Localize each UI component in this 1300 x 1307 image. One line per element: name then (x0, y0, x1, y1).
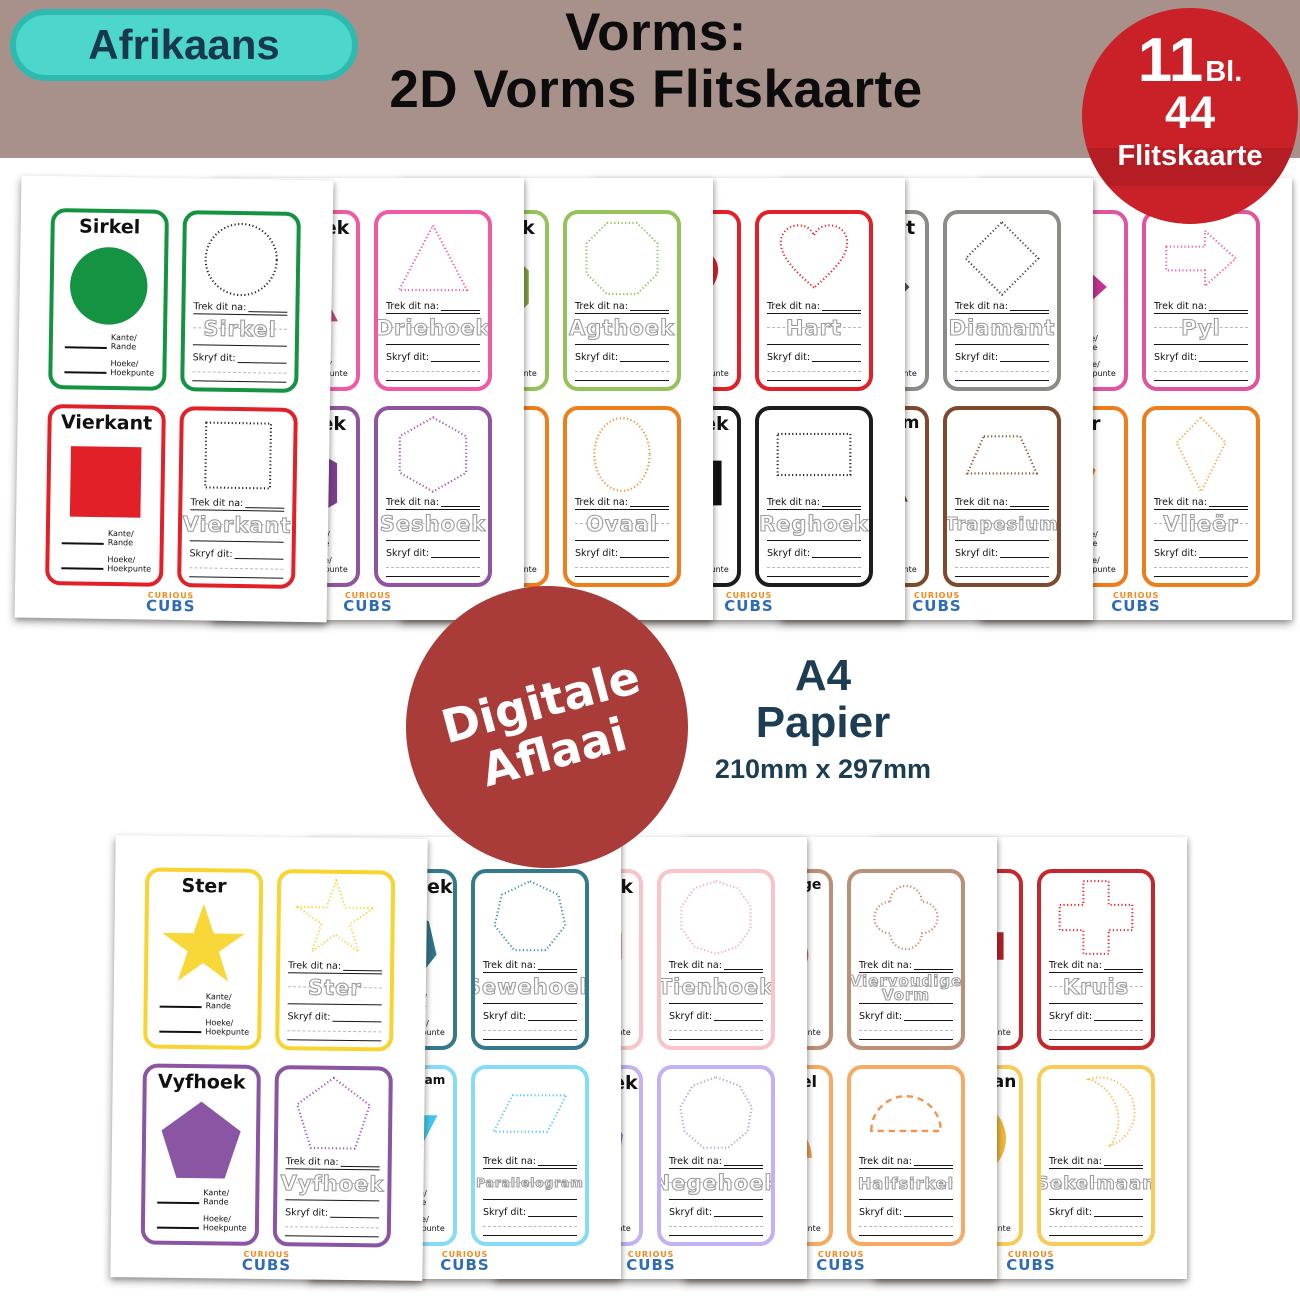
writing-line (904, 1216, 953, 1217)
trace-prompt: Trek dit na: (767, 497, 820, 508)
trace-word-guide: Reghoek (767, 509, 861, 541)
write-prompt: Skryf dit: (859, 1011, 902, 1022)
flashcard-trace-heart: Trek dit na: Hart Skryf dit: (755, 210, 873, 391)
write-guide (575, 559, 669, 577)
answer-line (62, 542, 104, 545)
trace-word-guide: Negehoek (669, 1168, 763, 1200)
writing-line (1209, 506, 1248, 507)
flashcard-trace-quatrefoil: Trek dit na: Viervoudige Vorm Skryf dit: (847, 869, 965, 1050)
trace-word-guide: Parallelogram (483, 1168, 577, 1200)
write-prompt: Skryf dit: (955, 352, 998, 363)
write-guide (767, 363, 861, 381)
write-prompt: Skryf dit: (483, 1207, 526, 1218)
writing-line (1199, 361, 1248, 362)
write-guide (189, 559, 283, 578)
write-prompt: Skryf dit: (575, 352, 618, 363)
write-prompt: Skryf dit: (669, 1207, 712, 1218)
trace-word: Halfsirkel (858, 1176, 954, 1191)
flashcard-trace-hexagon: Trek dit na: Seshoek Skryf dit: (374, 406, 492, 587)
write-prompt: Skryf dit: (193, 352, 236, 364)
writing-line (441, 310, 480, 311)
page-title: Vorms: 2D Vorms Flitskaarte (316, 4, 996, 118)
writing-line (812, 557, 861, 558)
flashcard-trace-semicircle: Trek dit na: Halfsirkel Skryf dit: (847, 1065, 965, 1246)
curious-cubs-logo: CURIOUS CUBS (15, 590, 327, 617)
trace-prompt: Trek dit na: (288, 960, 341, 972)
trace-word: Sewehoek (471, 978, 589, 998)
count-labels: Kante/Rande Hoeke/Hoekpunte (157, 1181, 251, 1233)
card-row: Ster Kante/Rande Hoeke/Hoekpunte Trek di… (143, 867, 427, 1051)
trace-word: Hart (786, 319, 842, 339)
write-guide (955, 559, 1049, 577)
writing-line (248, 311, 287, 313)
writing-line (1010, 506, 1049, 507)
writing-line (822, 506, 861, 507)
trace-prompt: Trek dit na: (1154, 497, 1207, 508)
semicircle-outline-icon (859, 1074, 953, 1153)
flashcard-trace-star: Trek dit na: Ster Skryf dit: (275, 869, 395, 1051)
oval-outline-icon (575, 415, 669, 494)
trace-word-guide: Viervoudige Vorm (859, 972, 953, 1004)
card-row: Sirkel Kante/Rande Hoeke/Hoekpunte Trek … (48, 208, 333, 393)
writing-line (431, 361, 480, 362)
flashcard-trace-trapezium: Trek dit na: Trapesium Skryf dit: (943, 406, 1061, 587)
trace-word: Negehoek (657, 1174, 775, 1194)
trace-prompt: Trek dit na: (767, 301, 820, 312)
writing-line (1094, 1020, 1143, 1021)
curious-cubs-logo: CURIOUS CUBS (110, 1249, 422, 1275)
trace-prompt: Trek dit na: (1049, 960, 1102, 971)
write-guide (859, 1022, 953, 1040)
trace-prompt: Trek dit na: (859, 960, 912, 971)
trace-prompt: Trek dit na: (859, 1156, 912, 1167)
trace-prompt: Trek dit na: (386, 497, 439, 508)
writing-line (812, 361, 861, 362)
write-prompt: Skryf dit: (287, 1011, 330, 1023)
write-guide (386, 559, 480, 577)
count-labels: Kante/Rande Hoeke/Hoekpunte (61, 522, 155, 574)
flashcard-trace-cross: Trek dit na: Kruis Skryf dit: (1037, 869, 1155, 1050)
trace-prompt: Trek dit na: (483, 960, 536, 971)
trace-word: Agthoek (569, 319, 675, 339)
writing-line (1000, 361, 1049, 362)
paper-size-name: A4 (673, 652, 973, 699)
sides-label: Kante/Rande (203, 1188, 250, 1207)
trace-word: Vyfhoek (281, 1174, 385, 1195)
flashcard-trace-square: Trek dit na: Vierkant Skryf dit: (177, 406, 298, 589)
write-prompt: Skryf dit: (955, 548, 998, 559)
write-guide (669, 1218, 763, 1236)
trace-prompt: Trek dit na: (286, 1156, 339, 1168)
paper-info: A4 Papier 210mm x 297mm (673, 652, 973, 785)
flashcard-trace-triangle: Trek dit na: Driehoek Skryf dit: (374, 210, 492, 391)
title-line-2: 2D Vorms Flitskaarte (316, 61, 996, 118)
trace-prompt: Trek dit na: (955, 497, 1008, 508)
write-guide (192, 363, 286, 382)
trace-word-guide: Trapesium (955, 509, 1049, 541)
language-badge: Afrikaans (10, 9, 358, 81)
flashcard-trace-crescent: Trek dit na: Sekelmaan Skryf dit: (1037, 1065, 1155, 1246)
trace-word: Diamant (949, 319, 1056, 339)
trace-word-guide: Ster (288, 972, 382, 1005)
flashcard-display-star: Ster Kante/Rande Hoeke/Hoekpunte (143, 867, 263, 1049)
square-icon (50, 436, 161, 528)
answer-line (65, 346, 107, 349)
writing-line (1094, 1216, 1143, 1217)
pentagon-icon (145, 1095, 256, 1186)
flashcard-trace-decagon: Trek dit na: Tienhoek Skryf dit: (657, 869, 775, 1050)
writing-line (1104, 1165, 1143, 1166)
count-labels: Kante/Rande Hoeke/Hoekpunte (159, 985, 253, 1037)
trapezium-outline-icon (955, 415, 1049, 494)
write-guide (287, 1022, 381, 1041)
write-guide (483, 1218, 577, 1236)
writing-line (714, 1216, 763, 1217)
trace-word: Ster (308, 979, 362, 1000)
trace-word-guide: Sirkel (193, 313, 287, 346)
decagon-outline-icon (669, 878, 763, 957)
corners-label: Hoeke/Hoekpunte (205, 1018, 252, 1037)
trace-word: Vlieër (1163, 515, 1239, 535)
nonagon-outline-icon (669, 1074, 763, 1153)
writing-line (431, 557, 480, 558)
writing-line (724, 969, 763, 970)
flashcard-trace-pentagon: Trek dit na: Vyfhoek Skryf dit: (273, 1065, 393, 1247)
shape-title: Vyfhoek (147, 1073, 257, 1094)
sides-label: Kante/Rande (111, 333, 158, 352)
card-row: Vyfhoek Kante/Rande Hoeke/Hoekpunte Trek… (141, 1063, 425, 1247)
heart-outline-icon (767, 219, 861, 298)
answer-line (61, 567, 103, 570)
flashcard-trace-parallelogram: Trek dit na: Parallelogram Skryf dit: (471, 1065, 589, 1246)
trace-word: Kruis (1063, 978, 1129, 998)
write-prompt: Skryf dit: (386, 548, 429, 559)
trace-word-guide: Kruis (1049, 972, 1143, 1004)
answer-line (160, 1005, 202, 1008)
flashcard-display-circle: Sirkel Kante/Rande Hoeke/Hoekpunte (48, 208, 169, 391)
trace-word-guide: Seshoek (386, 509, 480, 541)
writing-line (528, 1216, 577, 1217)
write-prompt: Skryf dit: (1154, 548, 1197, 559)
kite-outline-icon (1154, 415, 1248, 494)
cards-count: 44 (1082, 92, 1298, 134)
write-guide (575, 363, 669, 381)
trace-prompt: Trek dit na: (193, 301, 246, 313)
write-guide (955, 363, 1049, 381)
flashcard-trace-nonagon: Trek dit na: Negehoek Skryf dit: (657, 1065, 775, 1246)
trace-word-guide: Agthoek (575, 313, 669, 345)
flashcard-trace-kite: Trek dit na: Vlieër Skryf dit: (1142, 406, 1260, 587)
write-prompt: Skryf dit: (575, 548, 618, 559)
writing-line (441, 506, 480, 507)
title-line-1: Vorms: (316, 4, 996, 61)
shape-title: Sirkel (55, 217, 165, 239)
writing-line (914, 969, 953, 970)
diamond-outline-icon (955, 219, 1049, 298)
write-prompt: Skryf dit: (767, 352, 810, 363)
triangle-outline-icon (386, 219, 480, 298)
trace-word-guide: Hart (767, 313, 861, 345)
flashcard-display-pentagon: Vyfhoek Kante/Rande Hoeke/Hoekpunte (141, 1063, 261, 1245)
cards-label: Flitskaarte (1082, 140, 1298, 173)
quatrefoil-outline-icon (859, 878, 953, 957)
parallelogram-outline-icon (483, 1074, 577, 1153)
trace-word: Vierkant (182, 515, 291, 537)
writing-line (822, 310, 861, 311)
writing-line (245, 507, 284, 509)
flashcard-trace-rectangle: Trek dit na: Reghoek Skryf dit: (755, 406, 873, 587)
trace-prompt: Trek dit na: (1049, 1156, 1102, 1167)
writing-line (1209, 310, 1248, 311)
write-prompt: Skryf dit: (767, 548, 810, 559)
pages-unit: Bl. (1205, 56, 1242, 89)
trace-word: Trapesium (945, 516, 1059, 533)
flashcard-display-square: Vierkant Kante/Rande Hoeke/Hoekpunte (45, 404, 166, 587)
sides-label: Kante/Rande (108, 529, 155, 548)
flashcard-trace-heptagon: Trek dit na: Sewehoek Skryf dit: (471, 869, 589, 1050)
count-badge-pages: 11 Bl. (1082, 32, 1298, 90)
crescent-outline-icon (1049, 1074, 1143, 1153)
circle-outline-icon (194, 219, 289, 299)
trace-word-guide: Sewehoek (483, 972, 577, 1004)
trace-word-guide: Halfsirkel (859, 1168, 953, 1200)
trace-word-guide: Vlieër (1154, 509, 1248, 541)
writing-line (1000, 557, 1049, 558)
writing-line (714, 1020, 763, 1021)
write-guide (1154, 559, 1248, 577)
write-guide (285, 1218, 379, 1237)
sides-label: Kante/Rande (206, 992, 253, 1011)
write-guide (859, 1218, 953, 1236)
trace-word-guide: Vierkant (190, 509, 284, 542)
write-guide (1049, 1022, 1143, 1040)
writing-line (1104, 969, 1143, 970)
writing-line (341, 1166, 380, 1167)
writing-line (904, 1020, 953, 1021)
trace-word-guide: Tienhoek (669, 972, 763, 1004)
trace-word: Reghoek (759, 515, 869, 535)
write-prompt: Skryf dit: (285, 1207, 328, 1219)
trace-prompt: Trek dit na: (483, 1156, 536, 1167)
write-guide (669, 1022, 763, 1040)
trace-prompt: Trek dit na: (190, 497, 243, 509)
hexagon-outline-icon (386, 415, 480, 494)
trace-prompt: Trek dit na: (669, 960, 722, 971)
writing-line (528, 1020, 577, 1021)
answer-line (64, 371, 106, 374)
trace-word-guide: Driehoek (386, 313, 480, 345)
write-guide (483, 1022, 577, 1040)
trace-word: Pyl (1181, 319, 1221, 339)
write-prompt: Skryf dit: (1049, 1207, 1092, 1218)
shape-title: Ster (149, 877, 259, 898)
answer-line (157, 1227, 199, 1230)
trace-word: Viervoudige Vorm (850, 974, 963, 1003)
writing-line (620, 557, 669, 558)
writing-line (343, 970, 382, 971)
octagon-outline-icon (575, 219, 669, 298)
write-prompt: Skryf dit: (669, 1011, 712, 1022)
write-prompt: Skryf dit: (1049, 1011, 1092, 1022)
write-guide (1049, 1218, 1143, 1236)
writing-line (620, 361, 669, 362)
writing-line (1199, 557, 1248, 558)
trace-word-guide: Sekelmaan (1049, 1168, 1143, 1200)
shape-title: Vierkant (51, 413, 161, 435)
writing-line (914, 1165, 953, 1166)
trace-word: Driehoek (376, 319, 491, 339)
writing-line (538, 1165, 577, 1166)
star-icon (148, 899, 259, 990)
heptagon-outline-icon (483, 878, 577, 957)
corners-label: Hoeke/Hoekpunte (203, 1214, 250, 1233)
worksheet-page: Sirkel Kante/Rande Hoeke/Hoekpunte Trek … (15, 176, 334, 623)
count-labels: Kante/Rande Hoeke/Hoekpunte (64, 326, 158, 378)
star-outline-icon (288, 878, 383, 958)
trace-word-guide: Ovaal (575, 509, 669, 541)
write-prompt: Skryf dit: (386, 352, 429, 363)
writing-line (630, 506, 669, 507)
corners-label: Hoeke/Hoekpunte (110, 359, 157, 378)
trace-word: Sirkel (203, 319, 277, 340)
trace-word: Parallelogram (476, 1178, 583, 1189)
card-row: Vierkant Kante/Rande Hoeke/Hoekpunte Tre… (45, 404, 330, 589)
count-badge: 11 Bl. 44 Flitskaarte (1082, 8, 1298, 224)
answer-line (157, 1201, 199, 1204)
trace-word-guide: Vyfhoek (285, 1168, 379, 1201)
pages-count: 11 (1138, 32, 1204, 90)
rectangle-outline-icon (767, 415, 861, 494)
answer-line (159, 1031, 201, 1034)
trace-prompt: Trek dit na: (575, 497, 628, 508)
pentagon-outline-icon (286, 1074, 381, 1154)
circle-icon (53, 240, 164, 332)
write-prompt: Skryf dit: (1154, 352, 1197, 363)
flashcard-trace-circle: Trek dit na: Sirkel Skryf dit: (180, 210, 301, 393)
digital-download-text: Digitale Aflaai (436, 651, 659, 804)
trace-word-guide: Diamant (955, 313, 1049, 345)
trace-prompt: Trek dit na: (955, 301, 1008, 312)
trace-prompt: Trek dit na: (669, 1156, 722, 1167)
digital-download-badge: Digitale Aflaai (406, 586, 688, 868)
trace-prompt: Trek dit na: (575, 301, 628, 312)
corners-label: Hoeke/Hoekpunte (107, 555, 154, 574)
worksheet-page: Ster Kante/Rande Hoeke/Hoekpunte Trek di… (110, 835, 427, 1281)
writing-line (724, 1165, 763, 1166)
trace-prompt: Trek dit na: (1154, 301, 1207, 312)
flashcard-trace-oval: Trek dit na: Ovaal Skryf dit: (563, 406, 681, 587)
flashcard-trace-arrow: Trek dit na: Pyl Skryf dit: (1142, 210, 1260, 391)
trace-word: Ovaal (586, 515, 658, 535)
trace-word: Sekelmaan (1037, 1175, 1155, 1192)
write-guide (386, 363, 480, 381)
write-guide (1154, 363, 1248, 381)
flashcard-trace-diamond: Trek dit na: Diamant Skryf dit: (943, 210, 1061, 391)
flashcard-trace-octagon: Trek dit na: Agthoek Skryf dit: (563, 210, 681, 391)
trace-word: Tienhoek (658, 978, 774, 998)
writing-line (538, 969, 577, 970)
write-prompt: Skryf dit: (483, 1011, 526, 1022)
write-prompt: Skryf dit: (189, 548, 232, 560)
writing-line (630, 310, 669, 311)
trace-prompt: Trek dit na: (386, 301, 439, 312)
trace-word-guide: Pyl (1154, 313, 1248, 345)
paper-dimensions: 210mm x 297mm (673, 754, 973, 785)
trace-word: Seshoek (380, 515, 486, 535)
paper-material: Papier (673, 699, 973, 746)
square-outline-icon (191, 415, 286, 495)
write-prompt: Skryf dit: (859, 1207, 902, 1218)
arrow-outline-icon (1154, 219, 1248, 298)
writing-line (1010, 310, 1049, 311)
cross-outline-icon (1049, 878, 1143, 957)
write-guide (767, 559, 861, 577)
